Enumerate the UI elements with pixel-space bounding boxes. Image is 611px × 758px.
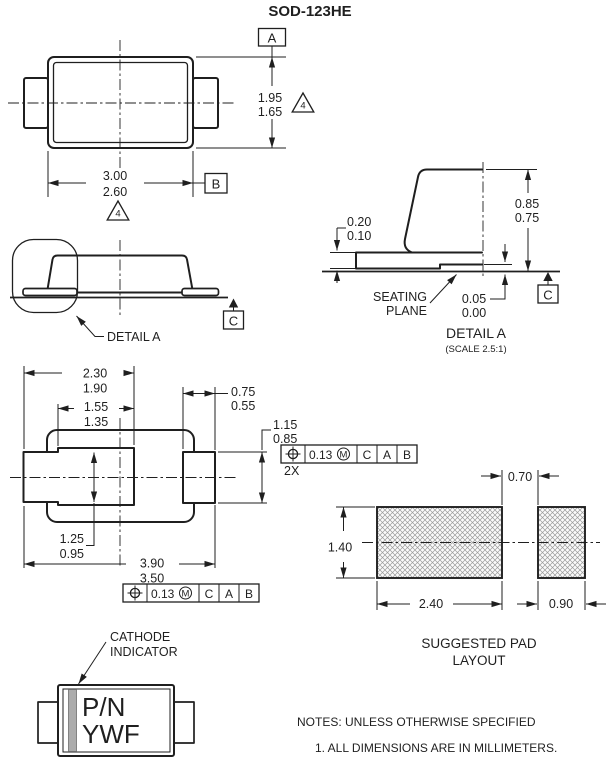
fcf-tolerance: 0.13 (309, 448, 333, 462)
marking-part-number: P/N (82, 692, 125, 722)
dim-max-label: 1.15 (273, 418, 297, 432)
fcf-modifier: M (340, 450, 348, 461)
marking-date-code: YWF (82, 719, 140, 749)
dim-label: 0.90 (549, 597, 573, 611)
detail-a-scale: (SCALE 2.5:1) (445, 344, 506, 355)
dim-max-label: 0.20 (347, 215, 371, 229)
pad-layout-title-line2: LAYOUT (452, 653, 505, 668)
dim-max-label: 1.25 (60, 532, 84, 546)
tolerance-count-label: 2X (284, 464, 300, 478)
pad-layout-title-line1: SUGGESTED PAD (421, 636, 537, 651)
detail-a-title: DETAIL A (446, 325, 507, 341)
side-view-left-lead (23, 289, 77, 296)
dim-max-label: 0.85 (515, 197, 539, 211)
dim-label: 0.70 (508, 470, 532, 484)
dim-min-label: 1.65 (258, 105, 282, 119)
note-flag-number: 4 (300, 101, 305, 112)
dim-min-label: 1.35 (84, 415, 108, 429)
dim-max-label: 1.55 (84, 400, 108, 414)
drawing-svg: SOD-123HE 1.95 1.65 4 A 3.00 (0, 0, 611, 758)
dim-min-label: 2.60 (103, 185, 127, 199)
cathode-terminal (24, 448, 135, 505)
dim-max-label: 3.90 (140, 557, 164, 571)
dim-min-label: 0.55 (231, 399, 255, 413)
cathode-band (69, 690, 77, 752)
package-outline-drawing: SOD-123HE 1.95 1.65 4 A 3.00 (0, 0, 611, 758)
fcf-modifier: M (182, 589, 190, 600)
seating-plane-label-1: SEATING (373, 290, 427, 304)
dim-max-label: 1.95 (258, 91, 282, 105)
cathode-callout-line1: CATHODE (110, 630, 170, 644)
notes-header: NOTES: UNLESS OTHERWISE SPECIFIED (297, 715, 536, 729)
dim-min-label: 0.10 (347, 229, 371, 243)
top-view-body (48, 57, 193, 148)
dim-min-label: 0.95 (60, 547, 84, 561)
dim-label: 1.40 (328, 541, 352, 555)
drawing-title: SOD-123HE (268, 3, 351, 20)
dim-max-label: 2.30 (83, 367, 107, 381)
side-view-right-lead (182, 289, 219, 296)
datum-c-letter: C (543, 288, 552, 303)
dim-min-label: 1.90 (83, 382, 107, 396)
fcf-datum-2: A (225, 587, 233, 601)
dim-min-label: 0.85 (273, 432, 297, 446)
cathode-callout-line2: INDICATOR (110, 645, 178, 659)
fcf-datum-3: B (403, 448, 411, 462)
datum-c-letter: C (229, 314, 238, 329)
dim-max-label: 0.75 (231, 385, 255, 399)
fcf-datum-2: A (383, 448, 391, 462)
seating-plane-label-2: PLANE (386, 304, 427, 318)
dim-max-label: 3.00 (103, 169, 127, 183)
datum-b-letter: B (212, 177, 221, 192)
marking-right-lead (174, 702, 194, 743)
fcf-datum-1: C (205, 587, 214, 601)
fcf-datum-3: B (245, 587, 253, 601)
dim-min-label: 0.00 (462, 306, 486, 320)
dim-min-label: 0.75 (515, 211, 539, 225)
fcf-tolerance: 0.13 (151, 587, 175, 601)
dim-label: 2.40 (419, 597, 443, 611)
note-flag-number: 4 (115, 209, 120, 220)
fcf-datum-1: C (363, 448, 372, 462)
notes-item-1: 1. ALL DIMENSIONS ARE IN MILLIMETERS. (315, 741, 557, 755)
dim-max-label: 0.05 (462, 292, 486, 306)
marking-left-lead (38, 702, 58, 743)
detail-a-callout: DETAIL A (107, 330, 161, 344)
datum-a-letter: A (268, 31, 277, 46)
